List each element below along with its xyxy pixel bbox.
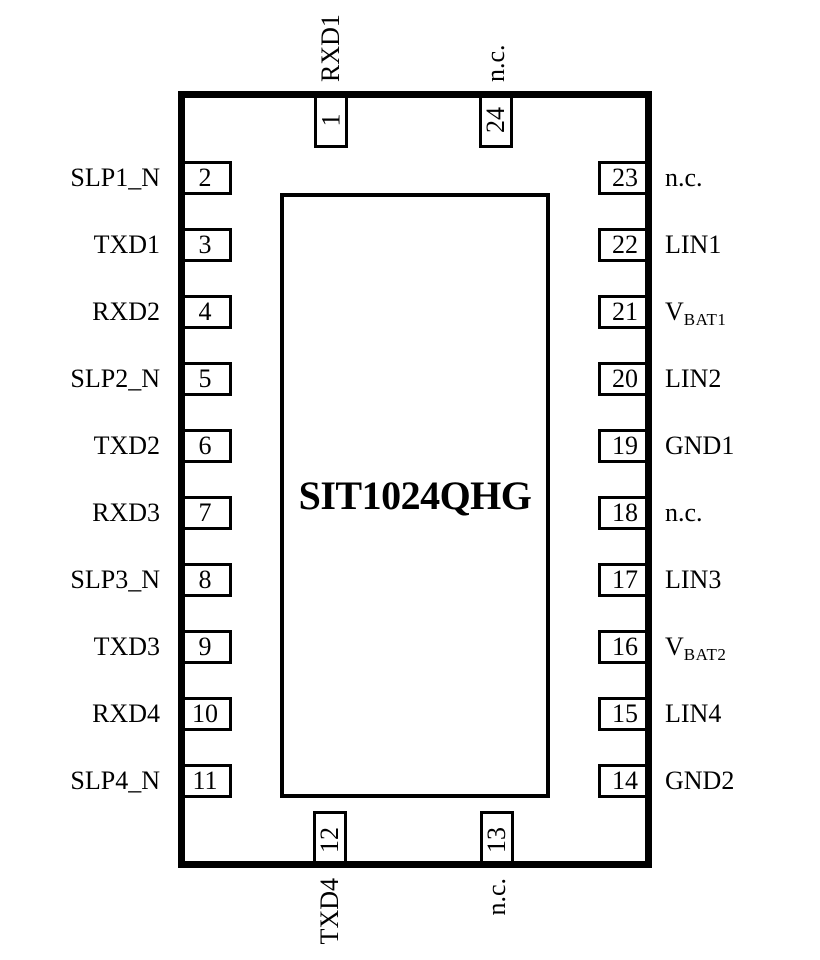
pin-20-number: 20: [612, 366, 638, 392]
pin-24-number: 24: [483, 107, 509, 133]
pin-23-number: 23: [612, 165, 638, 191]
pin-22-box: 22: [598, 228, 652, 262]
pin-7-label: RXD3: [20, 496, 160, 530]
pin-21-box: 21: [598, 295, 652, 329]
pin-19-box: 19: [598, 429, 652, 463]
pin-12-number: 12: [317, 827, 343, 853]
pin-16-box: 16: [598, 630, 652, 664]
pin-16-label-subscript: BAT2: [684, 645, 727, 664]
pinout-diagram: SIT1024QHG 2SLP1_N3TXD14RXD25SLP2_N6TXD2…: [0, 0, 820, 960]
pin-4-label: RXD2: [20, 295, 160, 329]
pin-6-label: TXD2: [20, 429, 160, 463]
pin-5-box: 5: [178, 362, 232, 396]
pin-17-box: 17: [598, 563, 652, 597]
pin-21-label-subscript: BAT1: [684, 310, 727, 329]
pin-1-number: 1: [318, 113, 344, 126]
pin-7-box: 7: [178, 496, 232, 530]
pin-6-box: 6: [178, 429, 232, 463]
pin-21-label: VBAT1: [665, 295, 810, 329]
pin-20-box: 20: [598, 362, 652, 396]
pin-14-box: 14: [598, 764, 652, 798]
pin-14-number: 14: [612, 768, 638, 794]
pin-4-number: 4: [199, 299, 212, 325]
pin-3-box: 3: [178, 228, 232, 262]
pin-3-label: TXD1: [20, 228, 160, 262]
pin-19-number: 19: [612, 433, 638, 459]
pin-11-label: SLP4_N: [20, 764, 160, 798]
pin-10-box: 10: [178, 697, 232, 731]
pin-23-box: 23: [598, 161, 652, 195]
pin-22-number: 22: [612, 232, 638, 258]
pin-16-label-main: V: [665, 632, 684, 661]
pin-9-box: 9: [178, 630, 232, 664]
pin-5-label: SLP2_N: [20, 362, 160, 396]
pin-11-number: 11: [192, 768, 217, 794]
pin-8-box: 8: [178, 563, 232, 597]
pin-17-label: LIN3: [665, 563, 810, 597]
pin-16-label: VBAT2: [665, 630, 810, 664]
pin-10-number: 10: [192, 701, 218, 727]
pin-20-label: LIN2: [665, 362, 810, 396]
pin-13-box: 13: [480, 811, 514, 868]
pin-15-label: LIN4: [665, 697, 810, 731]
pin-19-label: GND1: [665, 429, 810, 463]
pin-21-number: 21: [612, 299, 638, 325]
pin-22-label: LIN1: [665, 228, 810, 262]
pin-5-number: 5: [199, 366, 212, 392]
pin-2-box: 2: [178, 161, 232, 195]
chip-part-number: SIT1024QHG: [299, 472, 532, 519]
pin-9-label: TXD3: [20, 630, 160, 664]
pin-13-label: n.c.: [483, 878, 511, 960]
pin-7-number: 7: [199, 500, 212, 526]
pin-17-number: 17: [612, 567, 638, 593]
pin-11-box: 11: [178, 764, 232, 798]
pin-15-number: 15: [612, 701, 638, 727]
pin-18-box: 18: [598, 496, 652, 530]
pin-12-label: TXD4: [316, 878, 344, 960]
pin-21-label-main: V: [665, 297, 684, 326]
pin-2-number: 2: [199, 165, 212, 191]
pin-24-box: 24: [479, 91, 513, 148]
pin-9-number: 9: [199, 634, 212, 660]
pin-18-label: n.c.: [665, 496, 810, 530]
pin-18-number: 18: [612, 500, 638, 526]
pin-4-box: 4: [178, 295, 232, 329]
pin-6-number: 6: [199, 433, 212, 459]
pin-10-label: RXD4: [20, 697, 160, 731]
pin-8-number: 8: [199, 567, 212, 593]
pin-14-label: GND2: [665, 764, 810, 798]
pin-1-box: 1: [314, 91, 348, 148]
pin-23-label: n.c.: [665, 161, 810, 195]
pin-24-label: n.c.: [482, 0, 510, 82]
pin-2-label: SLP1_N: [20, 161, 160, 195]
pin-15-box: 15: [598, 697, 652, 731]
pin-8-label: SLP3_N: [20, 563, 160, 597]
pin-3-number: 3: [199, 232, 212, 258]
pin-1-label: RXD1: [317, 0, 345, 82]
pin-13-number: 13: [484, 827, 510, 853]
chip-die-rect: SIT1024QHG: [280, 193, 550, 798]
pin-12-box: 12: [313, 811, 347, 868]
pin-16-number: 16: [612, 634, 638, 660]
